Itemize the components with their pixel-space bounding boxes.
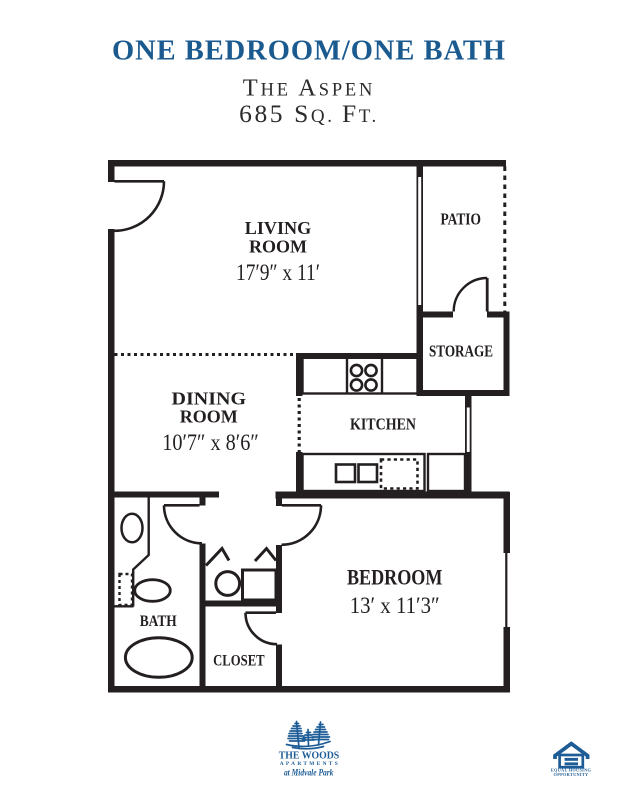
svg-text:STORAGE: STORAGE — [429, 341, 493, 360]
svg-text:LIVING: LIVING — [245, 218, 312, 238]
svg-text:ROOM: ROOM — [180, 407, 238, 427]
svg-text:685 SQ. FT.: 685 SQ. FT. — [239, 99, 379, 128]
svg-text:ONE BEDROOM/ONE BATH: ONE BEDROOM/ONE BATH — [112, 34, 506, 66]
svg-text:BEDROOM: BEDROOM — [347, 564, 443, 589]
svg-text:BATH: BATH — [140, 613, 177, 630]
svg-text:THE WOODS: THE WOODS — [279, 751, 340, 762]
svg-text:APARTMENTS: APARTMENTS — [280, 761, 338, 767]
svg-text:ROOM: ROOM — [249, 236, 307, 256]
svg-text:17′9″ x 11′: 17′9″ x 11′ — [236, 260, 320, 285]
svg-text:DINING: DINING — [172, 389, 247, 409]
svg-text:THE ASPEN: THE ASPEN — [243, 75, 375, 102]
svg-text:at Midvale Park: at Midvale Park — [284, 769, 334, 779]
svg-text:OPPORTUNITY: OPPORTUNITY — [554, 772, 589, 777]
svg-text:13′ x 11′3″: 13′ x 11′3″ — [350, 593, 440, 618]
svg-text:PATIO: PATIO — [440, 209, 481, 228]
svg-text:10′7″ x 8′6″: 10′7″ x 8′6″ — [162, 430, 259, 455]
svg-text:KITCHEN: KITCHEN — [350, 415, 417, 434]
svg-text:CLOSET: CLOSET — [213, 652, 265, 669]
